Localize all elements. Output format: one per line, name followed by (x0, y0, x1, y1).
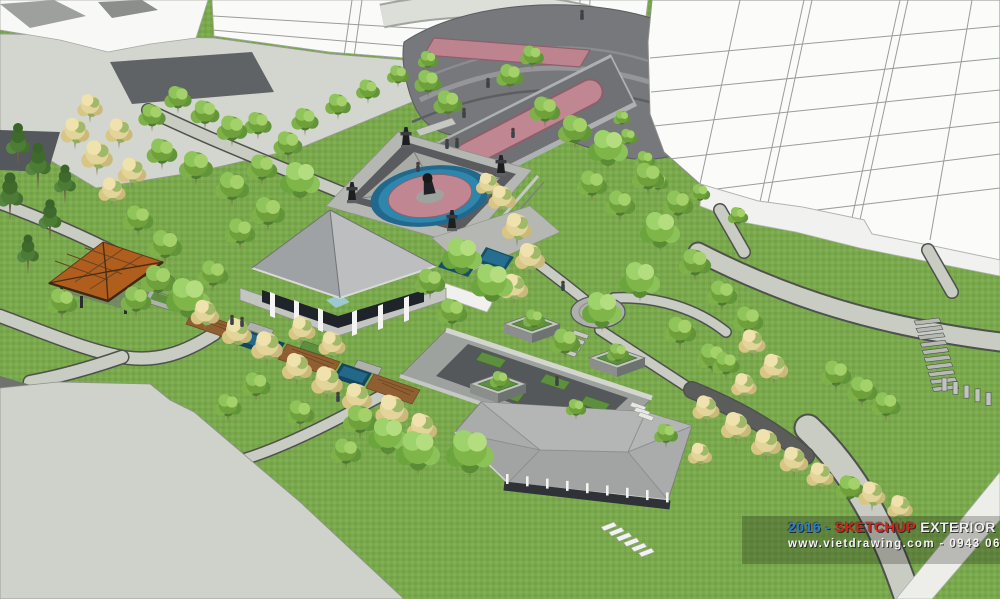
watermark-volume: EXTERIOR VOL.16 (920, 519, 1000, 535)
person (336, 392, 340, 402)
bench-row-bar (942, 378, 947, 391)
fence-posts-bar (546, 479, 549, 489)
person (580, 10, 584, 20)
watermark-brand: SKETCHUP (835, 519, 916, 535)
bench-row-bar (953, 382, 958, 395)
person (230, 315, 234, 325)
person (486, 78, 490, 88)
scene-svg (0, 0, 1000, 599)
person (511, 128, 515, 138)
watermark: 2016 - SKETCHUP EXTERIOR VOL.16 www.viet… (742, 516, 1000, 564)
fence-posts-bar (646, 490, 649, 500)
fence-posts-bar (566, 481, 569, 491)
fence-posts-bar (586, 483, 589, 493)
person (416, 162, 420, 172)
fence-posts-bar (506, 474, 509, 484)
bench-row-bar (975, 389, 980, 402)
bench-row-bar (964, 385, 969, 398)
bench-row-bar (986, 392, 991, 405)
watermark-website: www.vietdrawing.com - 0943 06 06 08 (788, 537, 996, 551)
person (561, 281, 565, 291)
fence-posts-bar (606, 486, 609, 496)
person (462, 108, 466, 118)
watermark-title: 2016 - SKETCHUP EXTERIOR VOL.16 (788, 519, 996, 537)
person (445, 139, 449, 149)
render-canvas: 2016 - SKETCHUP EXTERIOR VOL.16 www.viet… (0, 0, 1000, 599)
person (240, 317, 244, 327)
person (455, 138, 459, 148)
fence-posts-bar (666, 492, 669, 502)
fence-posts-bar (526, 476, 529, 486)
fence-posts-bar (626, 488, 629, 498)
person (555, 376, 559, 386)
watermark-year: 2016 - (788, 519, 831, 535)
